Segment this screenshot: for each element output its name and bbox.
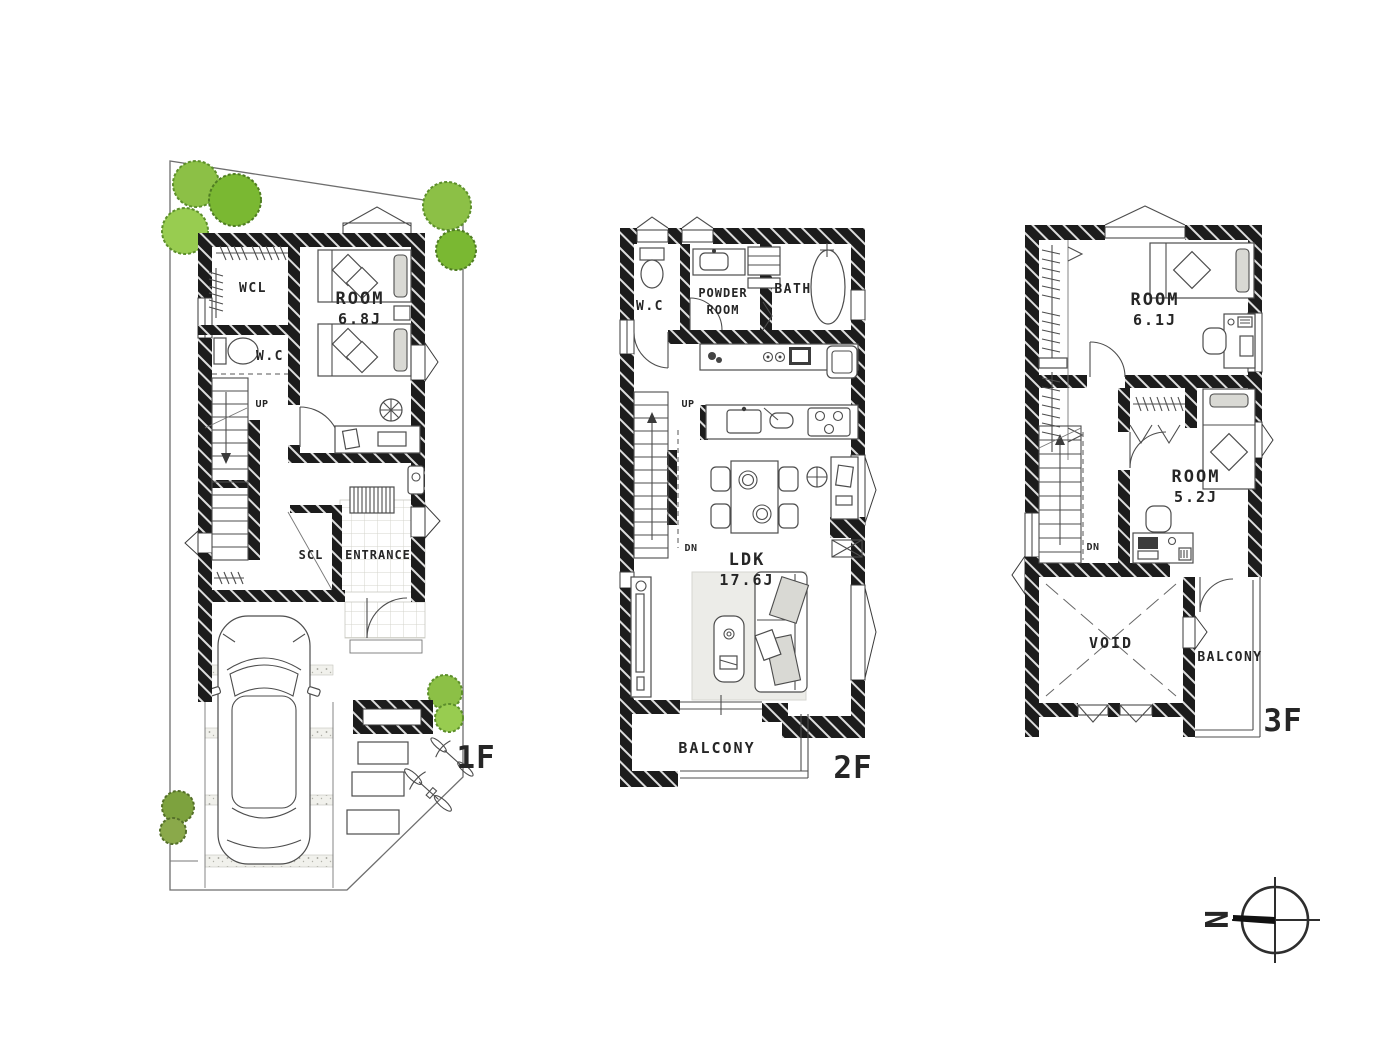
floor-2f: W.C POWDER ROOM BATH UP DN LDK 17.6J BAL… xyxy=(620,217,876,787)
label-balcony-2f: BALCONY xyxy=(678,739,755,757)
label-void: VOID xyxy=(1089,634,1133,652)
coffee-table xyxy=(714,616,744,682)
label-room-1f-size: 6.8J xyxy=(338,310,382,328)
closet-3f-room2 xyxy=(1130,397,1185,443)
floor-3f: ROOM 6.1J ROOM 5.2J DN VOID BALCONY 3F xyxy=(1012,206,1303,739)
desk-3f-room1 xyxy=(1203,314,1255,368)
label-room1-3f: ROOM xyxy=(1131,290,1180,310)
window-top-a xyxy=(637,217,668,242)
toilet-1f xyxy=(214,338,258,364)
entry-mat xyxy=(350,487,394,513)
wash-basin-1f xyxy=(408,466,424,494)
floorplan-canvas: WCL W.C ROOM 6.8J UP SCL ENTRANCE 1F xyxy=(0,0,1400,1050)
floorplan-svg: WCL W.C ROOM 6.8J UP SCL ENTRANCE 1F xyxy=(0,0,1400,1050)
door-wc-2f xyxy=(634,332,668,368)
door-room2-3f xyxy=(1130,432,1166,468)
label-room2-3f-size: 5.2J xyxy=(1174,488,1218,506)
kitchen-island xyxy=(706,405,858,439)
label-ldk: LDK xyxy=(729,550,766,570)
kitchen-back-counter xyxy=(700,344,858,378)
label-dn-3f: DN xyxy=(1086,542,1099,553)
label-ldk-size: 17.6J xyxy=(719,571,774,589)
label-room1-3f-size: 6.1J xyxy=(1133,311,1177,329)
label-wc-1f: W.C xyxy=(256,349,284,364)
closet-3f-left xyxy=(1039,240,1082,460)
dining-table xyxy=(711,461,798,533)
label-wcl: WCL xyxy=(239,281,267,296)
label-powder-1: POWDER xyxy=(698,286,747,300)
label-entrance: ENTRANCE xyxy=(345,548,411,562)
porch-tiles xyxy=(345,602,425,638)
label-balcony-3f: BALCONY xyxy=(1197,650,1262,665)
powder-vanity xyxy=(693,247,780,288)
bay-window-3f xyxy=(1105,206,1185,238)
label-floor-3f: 3F xyxy=(1263,703,1302,739)
label-up-1f: UP xyxy=(255,399,268,410)
sofa xyxy=(755,572,808,692)
bed-1f-b xyxy=(318,324,411,376)
desk-2f xyxy=(807,457,858,519)
desk-3f-room2 xyxy=(1133,506,1193,563)
label-wc-2f: W.C xyxy=(636,299,664,314)
label-bath: BATH xyxy=(774,282,811,297)
compass: N xyxy=(1197,877,1320,963)
north-pointer xyxy=(1233,915,1275,924)
car xyxy=(207,616,320,864)
nightstand-1f xyxy=(394,306,410,320)
window-top-b xyxy=(682,217,713,242)
label-floor-1f: 1F xyxy=(456,740,495,776)
tv-board xyxy=(631,577,651,697)
toilet-2f xyxy=(640,248,664,288)
label-scl: SCL xyxy=(299,548,324,562)
stairs-3f xyxy=(1039,426,1083,563)
label-floor-2f: 2F xyxy=(833,750,872,786)
label-room-1f: ROOM xyxy=(336,289,385,309)
door-room1-3f xyxy=(1090,342,1125,377)
label-dn-2f: DN xyxy=(684,543,697,554)
label-up-2f: UP xyxy=(681,399,694,410)
label-north: N xyxy=(1197,910,1233,930)
label-room2-3f: ROOM xyxy=(1172,467,1221,487)
label-powder-2: ROOM xyxy=(707,303,740,317)
floor-1f: WCL W.C ROOM 6.8J UP SCL ENTRANCE 1F xyxy=(160,161,496,890)
